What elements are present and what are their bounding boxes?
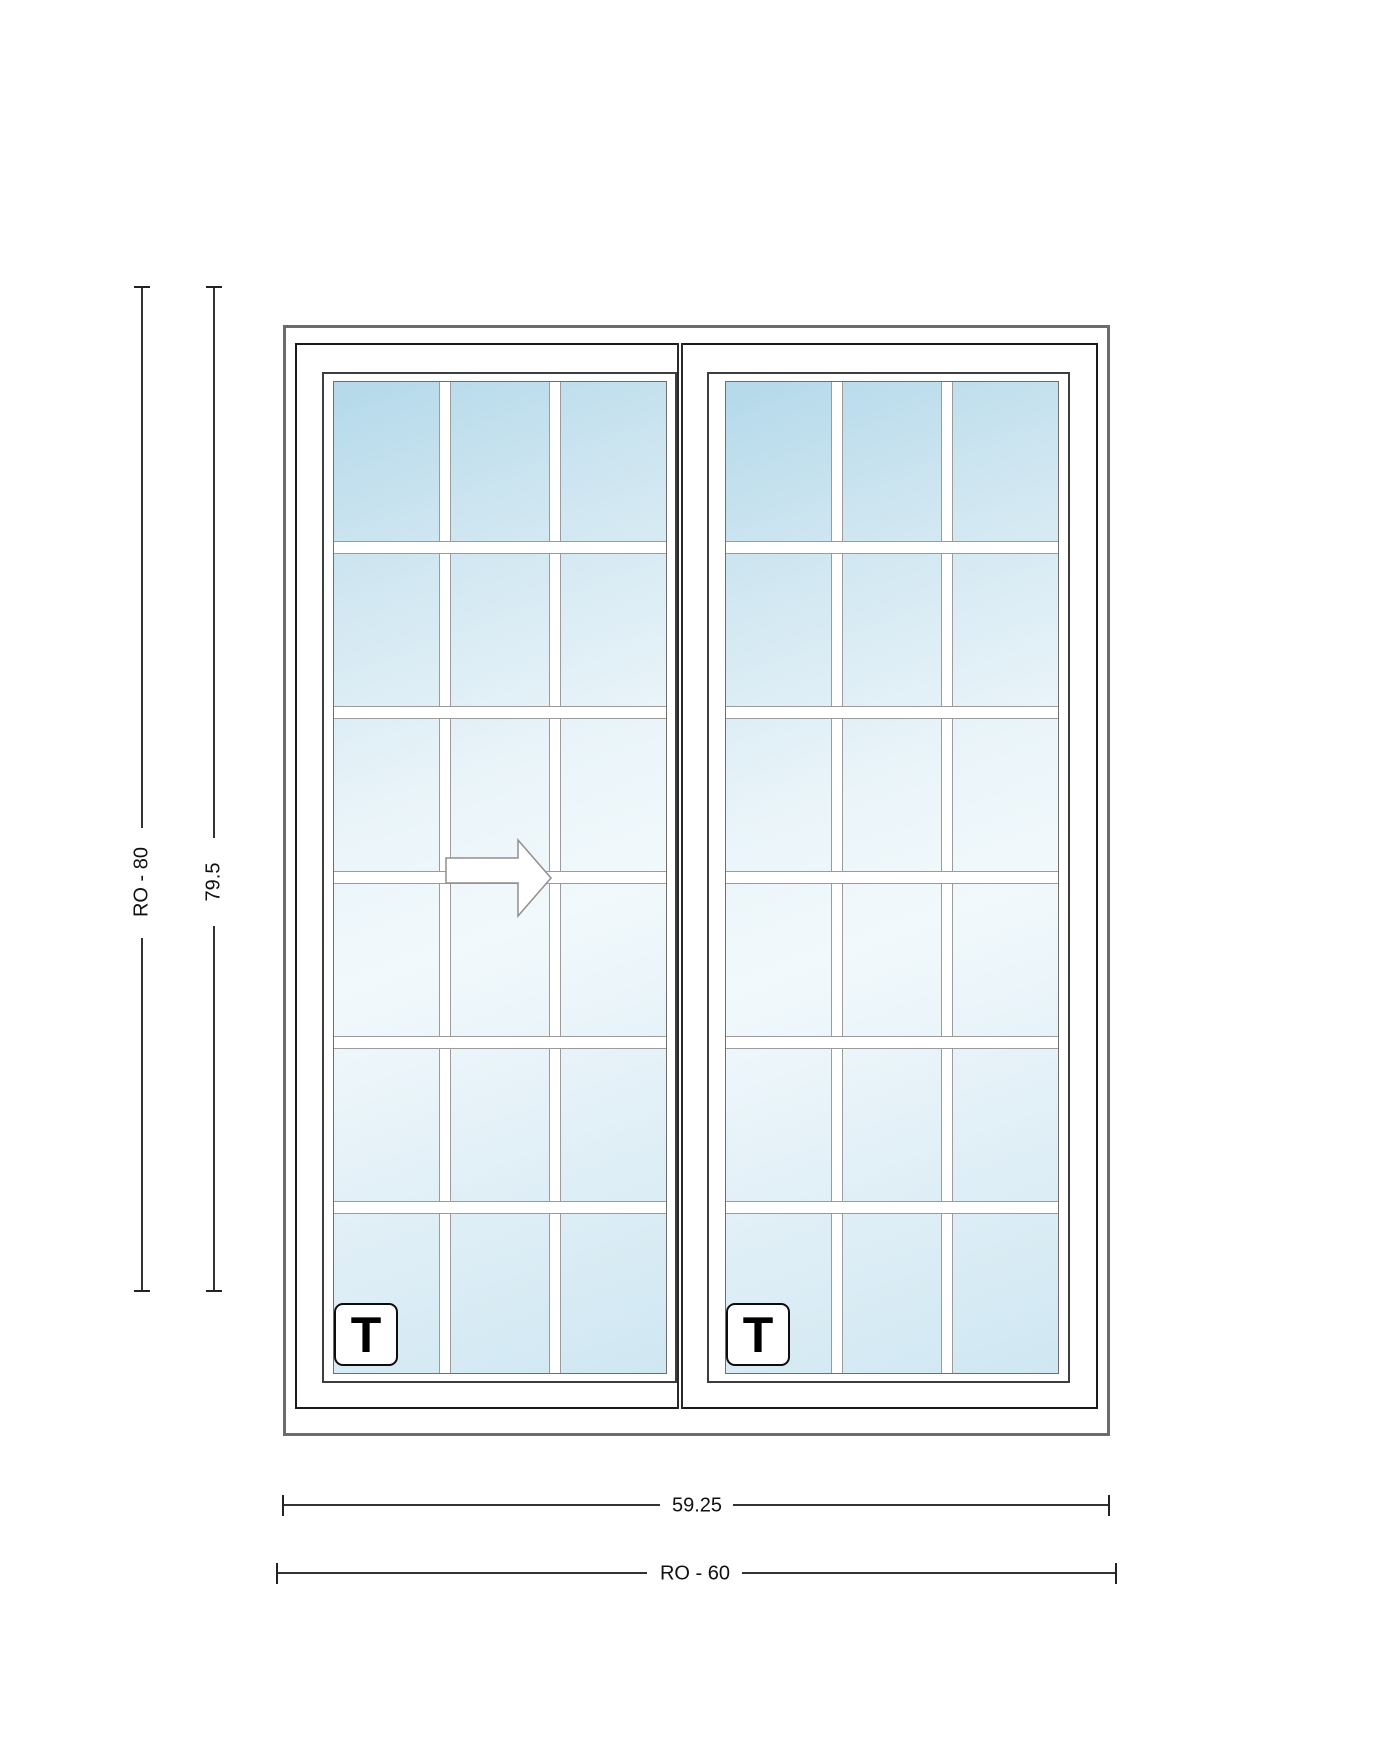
dim-height-unit-line-top bbox=[213, 287, 215, 838]
window-elevation-canvas: RO - 80 79.5 T T 59.25 bbox=[0, 0, 1390, 1743]
dimension-tick bbox=[206, 286, 222, 288]
dim-width-unit-line-right bbox=[733, 1504, 1110, 1506]
dimension-tick bbox=[134, 1290, 150, 1292]
dim-width-ro-line-left bbox=[277, 1572, 647, 1574]
dimension-tick bbox=[206, 1290, 222, 1292]
horizontal-muntin bbox=[726, 1201, 1058, 1214]
left-glass: T bbox=[333, 381, 667, 1374]
dimension-tick bbox=[134, 286, 150, 288]
horizontal-muntin bbox=[726, 541, 1058, 554]
dim-width-unit-label: 59.25 bbox=[668, 1495, 726, 1518]
dimension-tick bbox=[282, 1495, 284, 1516]
slide-direction-arrow-icon bbox=[441, 836, 556, 921]
dim-width-unit-line-left bbox=[283, 1504, 660, 1506]
horizontal-muntin bbox=[334, 541, 666, 554]
horizontal-muntin bbox=[726, 871, 1058, 884]
horizontal-muntin bbox=[726, 1036, 1058, 1049]
tempered-glass-badge: T bbox=[726, 1303, 790, 1366]
horizontal-muntin bbox=[334, 1036, 666, 1049]
horizontal-muntin bbox=[726, 706, 1058, 719]
dim-width-ro-label: RO - 60 bbox=[656, 1563, 734, 1586]
dimension-tick bbox=[1115, 1563, 1117, 1584]
tempered-glass-badge: T bbox=[334, 1303, 398, 1366]
dim-height-ro-line-bottom bbox=[141, 938, 143, 1292]
dim-height-ro-line-top bbox=[141, 287, 143, 828]
dim-height-unit-label: 79.5 bbox=[203, 859, 226, 906]
horizontal-muntin bbox=[334, 1201, 666, 1214]
dim-width-ro-line-right bbox=[742, 1572, 1117, 1574]
meeting-stile bbox=[677, 343, 683, 1409]
dim-height-unit-line-bottom bbox=[213, 926, 215, 1292]
dimension-tick bbox=[276, 1563, 278, 1584]
dimension-tick bbox=[1108, 1495, 1110, 1516]
right-glass: T bbox=[725, 381, 1059, 1374]
horizontal-muntin bbox=[334, 706, 666, 719]
dim-height-ro-label: RO - 80 bbox=[131, 843, 154, 921]
